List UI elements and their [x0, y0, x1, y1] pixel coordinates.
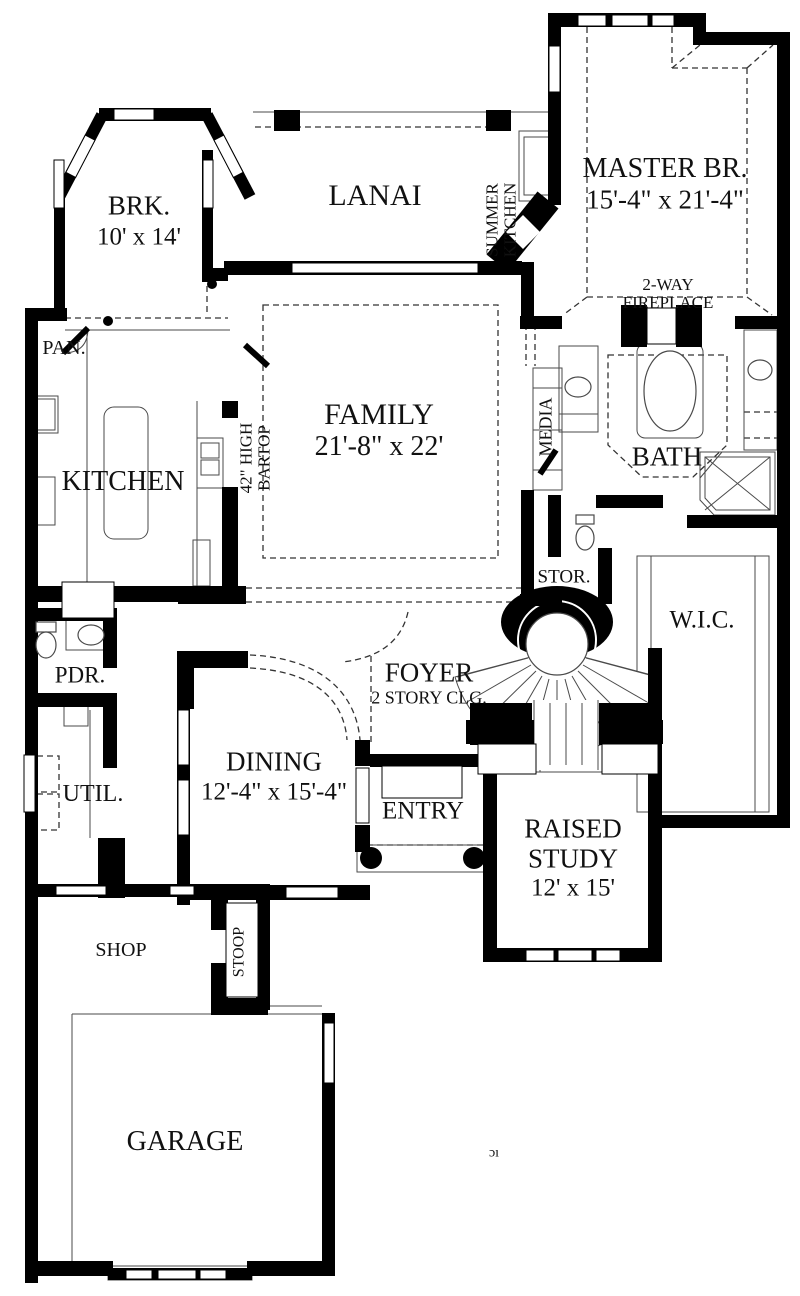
label-dining: DINING: [226, 747, 322, 776]
kitchen-door-leaf: [245, 345, 268, 366]
label-stoop: STOOP: [230, 927, 247, 977]
entry-column: [463, 847, 485, 869]
label-study-2: STUDY: [528, 844, 618, 873]
label-bath: BATH: [632, 442, 703, 471]
tub: [644, 351, 696, 431]
label-kitchen: KITCHEN: [62, 467, 185, 497]
door-pivot: [207, 279, 217, 289]
floor-plan: BRK. 10' x 14' LANAI SUMMER KITCHEN MAST…: [0, 0, 800, 1296]
fireplace-box: [647, 308, 676, 344]
label-master-dims: 15'-4" x 21'-4": [586, 185, 744, 214]
label-fireplace-2: FIREPLACE: [623, 294, 714, 312]
label-master: MASTER BR.: [583, 154, 748, 184]
label-foyer: FOYER: [385, 658, 474, 687]
sink: [78, 625, 104, 645]
label-foyer-clg: 2 STORY CLG.: [371, 688, 487, 707]
label-garage: GARAGE: [127, 1127, 244, 1157]
label-pantry: PAN.: [42, 338, 85, 360]
label-brk-dims: 10' x 14': [97, 224, 181, 251]
label-shop: SHOP: [95, 940, 146, 962]
label-media: MEDIA: [536, 398, 555, 457]
front-door-recess: [382, 766, 462, 798]
label-brk: BRK.: [108, 191, 170, 220]
label-study-dims: 12' x 15': [531, 875, 615, 902]
label-study-1: RAISED: [524, 814, 622, 843]
study-niche-left: [478, 744, 536, 774]
study-niche-right: [602, 744, 658, 774]
toilet-tank: [576, 515, 594, 524]
toilet-tank: [36, 622, 56, 632]
sink: [565, 377, 591, 397]
label-util: UTIL.: [63, 782, 124, 808]
partial-mark: ɔı: [489, 1145, 499, 1160]
label-lanai: LANAI: [328, 180, 421, 212]
label-bartop: 42" HIGH BARTOP: [238, 423, 275, 494]
label-pdr: PDR.: [55, 664, 106, 689]
label-family: FAMILY: [324, 399, 434, 431]
label-family-dims: 21'-8" x 22': [315, 432, 444, 462]
label-wic: W.I.C.: [669, 607, 734, 634]
kitchen-sink-cabinet: [62, 582, 114, 618]
label-entry: ENTRY: [382, 798, 464, 825]
entry-column: [360, 847, 382, 869]
toilet: [36, 632, 56, 658]
label-dining-dims: 12'-4" x 15'-4": [201, 779, 347, 806]
label-fireplace-1: 2-WAY: [642, 276, 693, 294]
util-sink: [64, 706, 88, 726]
label-stor: STOR.: [538, 568, 591, 589]
label-summer-kitchen: SUMMER KITCHEN: [484, 183, 521, 258]
sink: [748, 360, 772, 380]
toilet: [576, 526, 594, 550]
door-pivot: [103, 316, 113, 326]
vanity-right: [744, 330, 777, 450]
